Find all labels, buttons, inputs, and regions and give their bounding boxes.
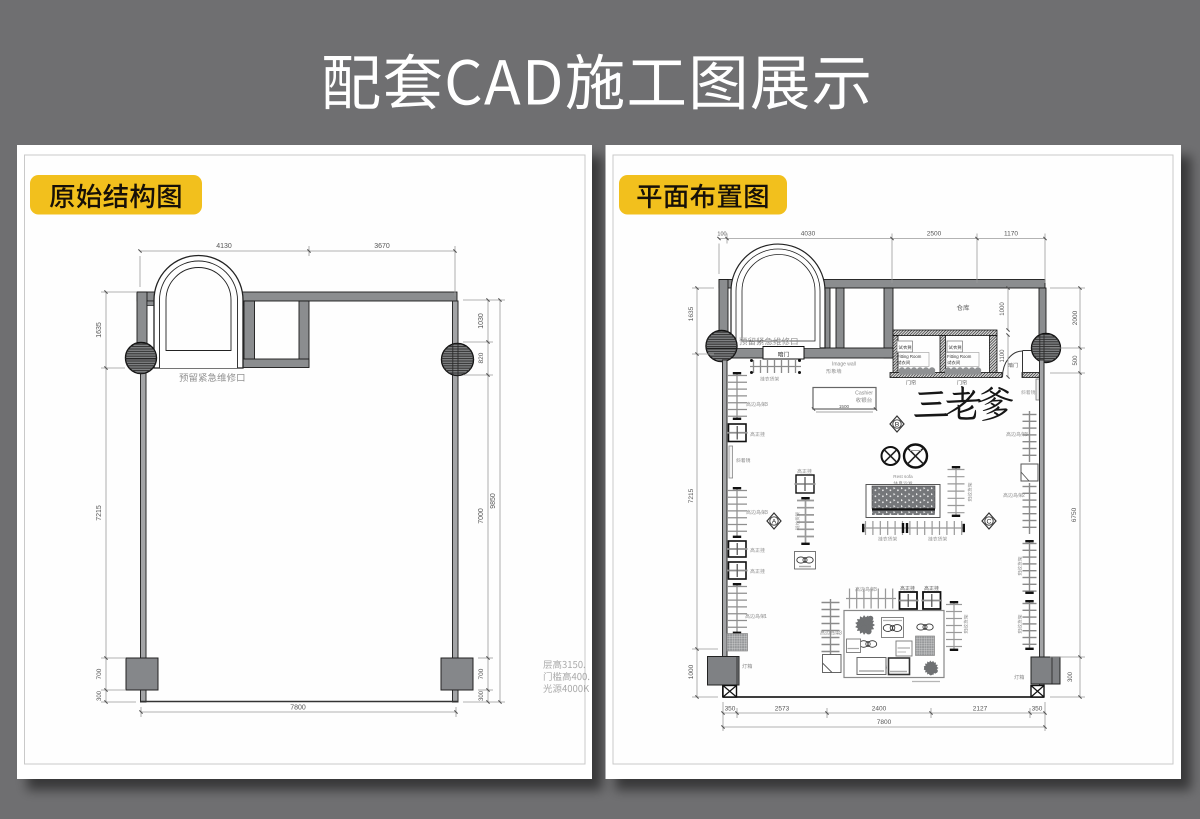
svg-text:1000: 1000	[688, 664, 695, 679]
svg-text:1500: 1500	[839, 404, 850, 409]
svg-text:350: 350	[1032, 706, 1043, 713]
svg-text:2: 2	[1022, 493, 1025, 499]
svg-text:4030: 4030	[801, 231, 816, 238]
svg-text:700: 700	[96, 668, 103, 679]
svg-text:300: 300	[1068, 671, 1074, 682]
svg-text:1: 1	[764, 614, 767, 620]
svg-text:1000: 1000	[1000, 302, 1006, 316]
svg-text:2573: 2573	[775, 706, 790, 713]
svg-text:7000: 7000	[478, 508, 485, 524]
svg-text:1635: 1635	[688, 306, 695, 321]
svg-text:A: A	[772, 519, 777, 526]
svg-text:B: B	[895, 422, 900, 429]
svg-text:2400: 2400	[872, 706, 887, 713]
svg-text:Fitting Room: Fitting Room	[947, 354, 972, 359]
svg-text:3: 3	[765, 510, 768, 516]
svg-text:3670: 3670	[374, 243, 390, 250]
svg-text:3: 3	[765, 402, 768, 408]
svg-text:1030: 1030	[478, 313, 485, 329]
svg-text:Image wall: Image wall	[832, 362, 856, 368]
svg-text:1170: 1170	[1004, 231, 1018, 238]
svg-text:4130: 4130	[216, 243, 232, 250]
svg-text:Rest sofa: Rest sofa	[893, 474, 913, 479]
svg-text:6750: 6750	[1071, 507, 1078, 522]
svg-text:1635: 1635	[96, 322, 103, 338]
svg-text:Cashier: Cashier	[855, 391, 873, 397]
svg-text:Fitting Room: Fitting Room	[897, 354, 922, 359]
svg-text:3: 3	[1025, 432, 1028, 438]
svg-text:820: 820	[478, 352, 485, 363]
svg-text:3: 3	[839, 631, 842, 637]
svg-text:300: 300	[479, 690, 485, 701]
svg-text:2500: 2500	[927, 231, 942, 238]
svg-text:700: 700	[478, 668, 485, 679]
svg-text:7800: 7800	[877, 719, 892, 726]
svg-text:7800: 7800	[290, 705, 306, 712]
svg-text:C: C	[987, 519, 992, 526]
svg-text:300: 300	[97, 690, 103, 701]
svg-text:7215: 7215	[688, 488, 695, 503]
svg-text:350: 350	[725, 706, 736, 713]
svg-text:2127: 2127	[973, 706, 988, 713]
svg-text:1100: 1100	[1000, 349, 1006, 363]
svg-text:7215: 7215	[96, 505, 103, 521]
svg-text:3: 3	[874, 587, 877, 593]
svg-text:100: 100	[717, 232, 726, 238]
svg-text:500: 500	[1073, 355, 1079, 366]
svg-text:2000: 2000	[1072, 310, 1079, 325]
svg-text:9850: 9850	[490, 493, 497, 509]
